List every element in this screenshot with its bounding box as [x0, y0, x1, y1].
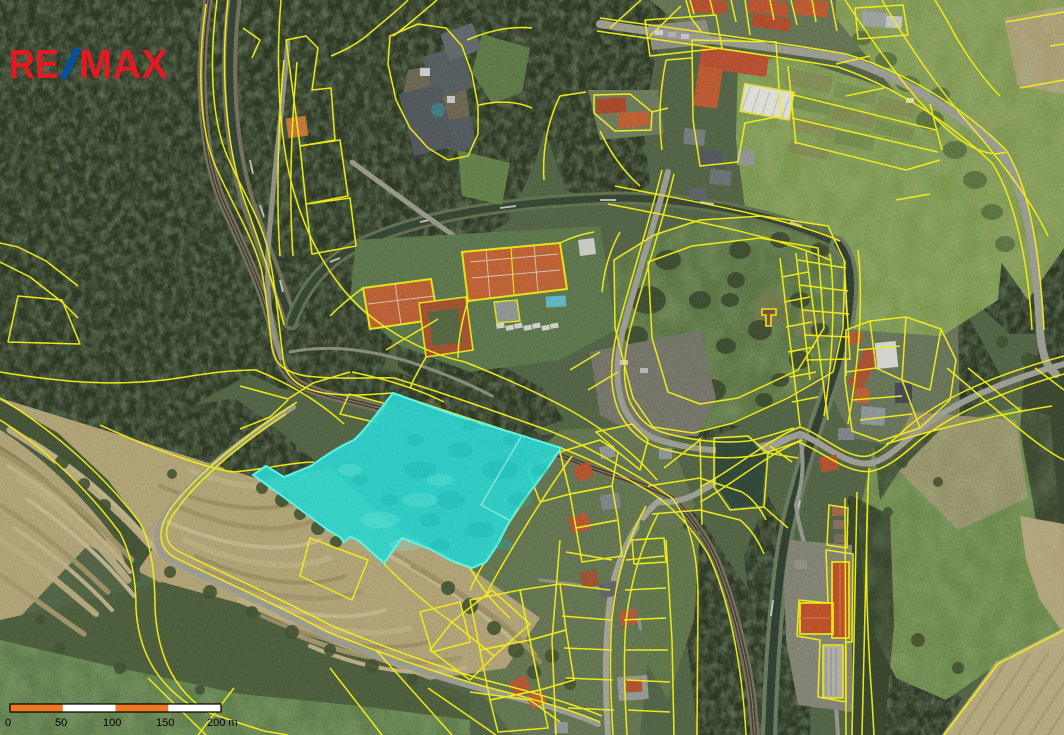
- svg-text:200 m: 200 m: [207, 717, 238, 729]
- svg-text:50: 50: [55, 717, 67, 729]
- svg-text:100: 100: [103, 717, 121, 729]
- svg-text:RE: RE: [9, 41, 59, 87]
- svg-text:150: 150: [156, 717, 174, 729]
- svg-text:0: 0: [5, 717, 11, 729]
- svg-text:MAX: MAX: [79, 41, 168, 87]
